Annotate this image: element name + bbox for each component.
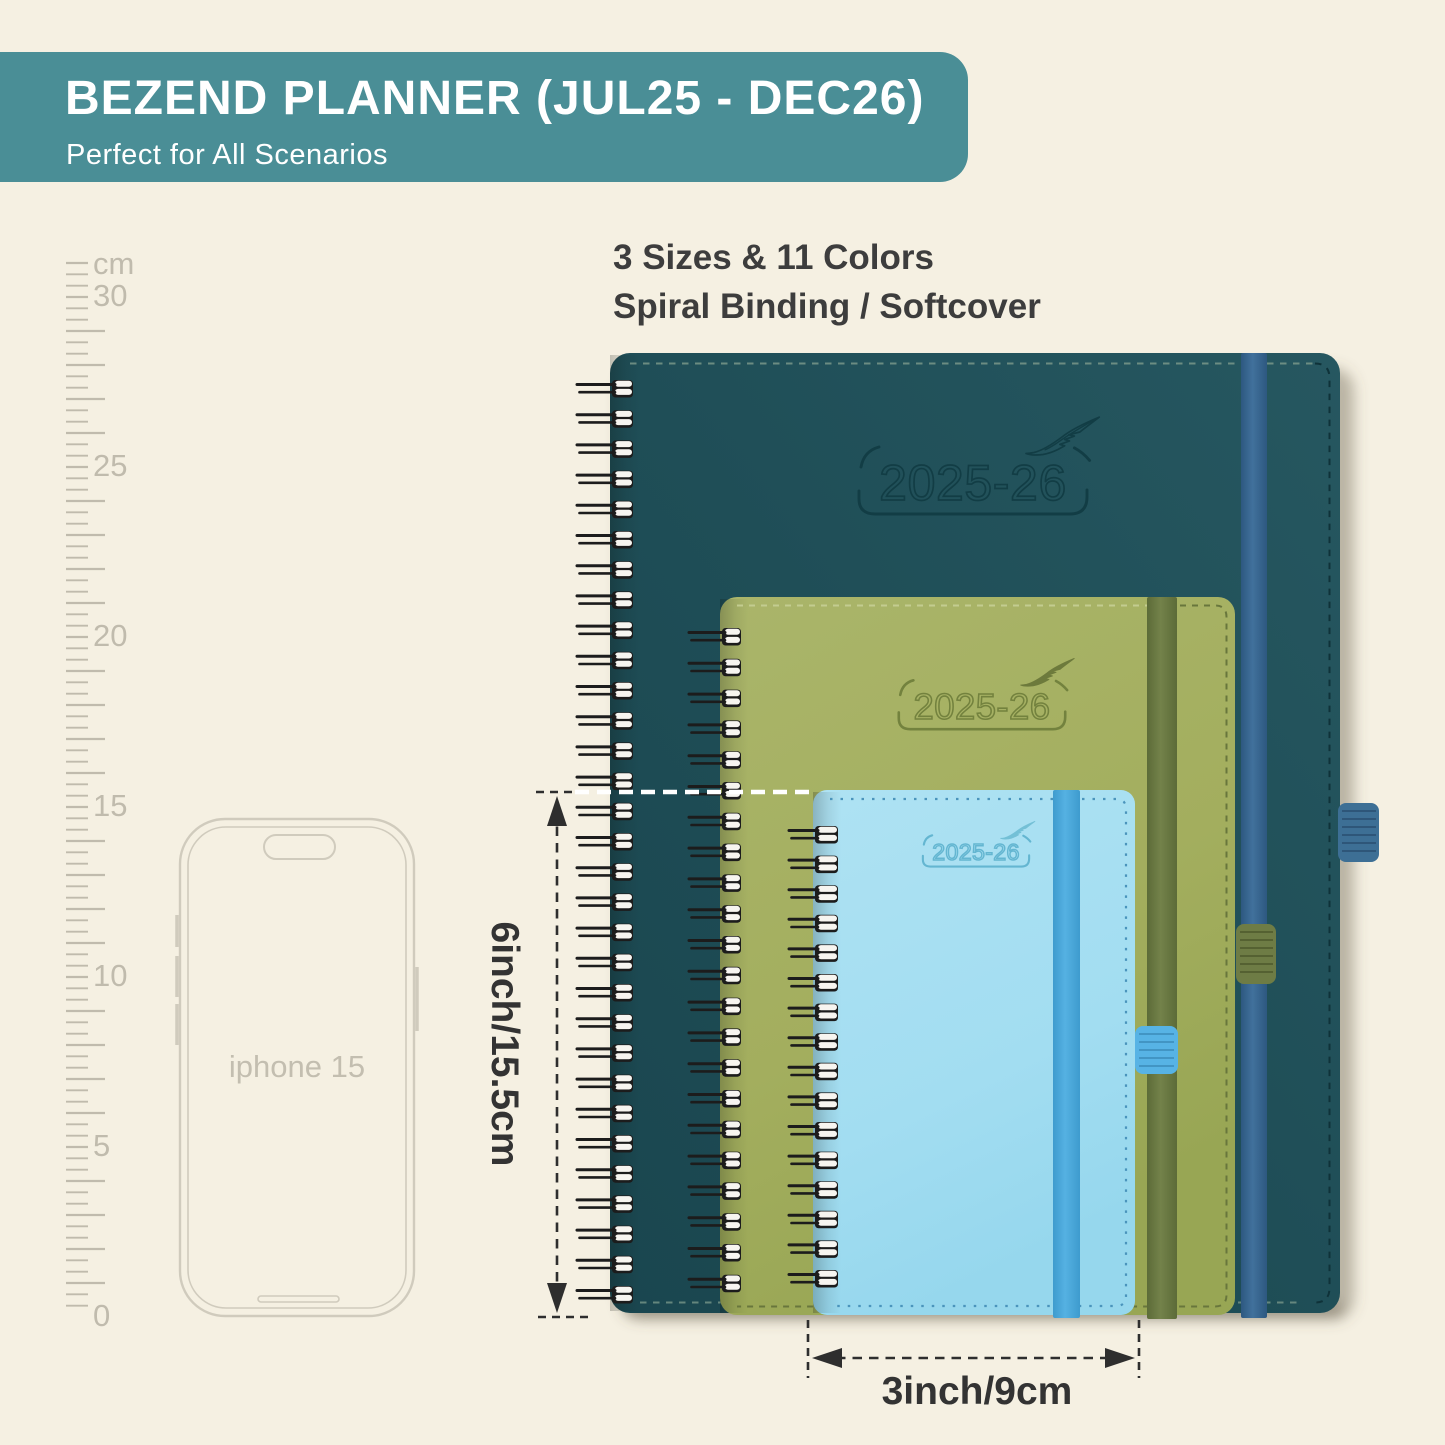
svg-text:2025-26: 2025-26 [913, 686, 1050, 727]
svg-text:2025-26: 2025-26 [932, 839, 1019, 865]
svg-text:20: 20 [93, 618, 127, 653]
svg-text:15: 15 [93, 788, 127, 823]
svg-text:25: 25 [93, 448, 127, 483]
svg-text:0: 0 [93, 1298, 110, 1333]
svg-text:cm: cm [93, 246, 134, 281]
svg-text:3inch/9cm: 3inch/9cm [882, 1370, 1073, 1413]
svg-text:2025-26: 2025-26 [879, 455, 1067, 511]
svg-text:10: 10 [93, 958, 127, 993]
svg-text:iphone 15: iphone 15 [229, 1049, 365, 1084]
svg-text:3 Sizes & 11 Colors: 3 Sizes & 11 Colors [613, 238, 934, 277]
svg-text:6inch/15.5cm: 6inch/15.5cm [483, 922, 526, 1167]
svg-text:30: 30 [93, 278, 127, 313]
svg-text:5: 5 [93, 1128, 110, 1163]
svg-text:Spiral Binding / Softcover: Spiral Binding / Softcover [613, 287, 1041, 326]
